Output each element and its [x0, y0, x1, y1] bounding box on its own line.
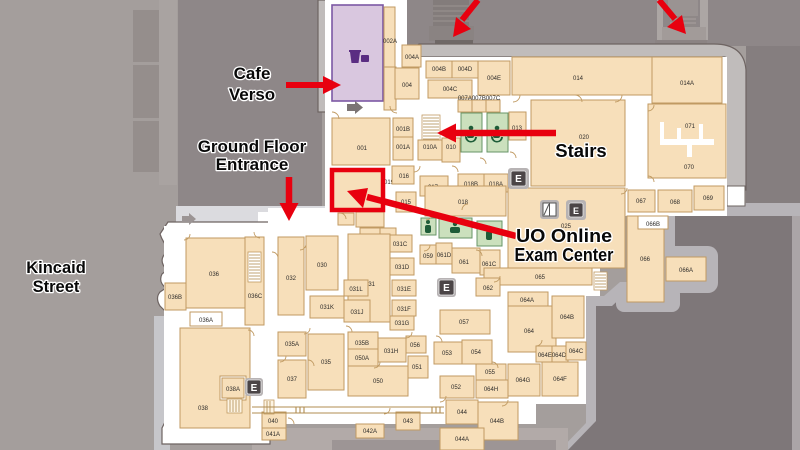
svg-text:053: 053: [442, 351, 453, 357]
svg-text:064: 064: [524, 329, 535, 335]
svg-text:004A: 004A: [405, 55, 419, 61]
svg-text:035: 035: [321, 360, 332, 366]
svg-text:064C: 064C: [569, 349, 584, 355]
svg-text:001B: 001B: [396, 127, 410, 133]
svg-text:066A: 066A: [679, 268, 693, 274]
svg-text:001A: 001A: [396, 145, 410, 151]
svg-text:Exam Center: Exam Center: [515, 245, 614, 265]
svg-text:Entrance: Entrance: [216, 155, 289, 174]
svg-text:064B: 064B: [560, 315, 574, 321]
svg-text:016: 016: [399, 174, 410, 180]
svg-text:065: 065: [535, 275, 546, 281]
svg-text:044A: 044A: [455, 437, 469, 443]
svg-text:004D: 004D: [458, 67, 473, 73]
svg-text:064A: 064A: [520, 298, 534, 304]
svg-text:E: E: [573, 206, 579, 216]
svg-text:062: 062: [483, 286, 494, 292]
svg-text:004C: 004C: [443, 87, 458, 93]
svg-text:061D: 061D: [437, 253, 452, 259]
svg-text:004: 004: [402, 83, 413, 89]
svg-text:E: E: [515, 174, 522, 185]
svg-text:064E064D: 064E064D: [538, 353, 567, 359]
svg-text:042A: 042A: [363, 429, 377, 435]
svg-text:050A: 050A: [355, 356, 369, 362]
svg-text:040: 040: [268, 419, 279, 425]
svg-text:031G: 031G: [395, 321, 410, 327]
svg-text:Stairs: Stairs: [555, 140, 606, 161]
svg-text:043: 043: [403, 419, 414, 425]
svg-text:066B: 066B: [646, 222, 660, 228]
svg-text:037: 037: [287, 377, 298, 383]
svg-text:055: 055: [485, 370, 496, 376]
svg-text:031D: 031D: [395, 265, 410, 271]
svg-text:061: 061: [459, 260, 470, 266]
svg-text:064H: 064H: [484, 387, 498, 393]
svg-text:051: 051: [412, 365, 423, 371]
svg-text:E: E: [251, 383, 258, 394]
svg-text:044B: 044B: [490, 419, 504, 425]
svg-text:035A: 035A: [285, 342, 299, 348]
svg-text:036C: 036C: [248, 294, 263, 300]
svg-text:010A: 010A: [423, 145, 437, 151]
svg-text:004E: 004E: [487, 76, 501, 82]
svg-text:050: 050: [373, 379, 384, 385]
svg-text:059: 059: [423, 254, 434, 260]
svg-text:031L: 031L: [349, 287, 363, 293]
svg-text:054: 054: [471, 350, 482, 356]
svg-text:036A: 036A: [199, 318, 213, 324]
svg-text:038: 038: [198, 406, 209, 412]
svg-text:010: 010: [446, 145, 457, 151]
svg-text:068: 068: [670, 200, 681, 206]
svg-text:056: 056: [410, 343, 421, 349]
svg-text:031H: 031H: [384, 349, 398, 355]
svg-text:070: 070: [684, 165, 695, 171]
svg-text:064F: 064F: [553, 377, 567, 383]
svg-text:031J: 031J: [350, 310, 363, 316]
svg-text:064G: 064G: [516, 378, 531, 384]
svg-text:030: 030: [317, 263, 328, 269]
svg-text:061C: 061C: [482, 262, 497, 268]
svg-text:057: 057: [459, 320, 470, 326]
svg-text:067: 067: [636, 199, 647, 205]
svg-text:031E: 031E: [397, 287, 411, 293]
svg-text:001: 001: [357, 146, 368, 152]
svg-text:007A007B007C: 007A007B007C: [458, 96, 501, 102]
svg-text:069: 069: [703, 196, 714, 202]
svg-text:Kincaid: Kincaid: [26, 259, 86, 277]
svg-text:031C: 031C: [393, 242, 408, 248]
svg-text:036: 036: [209, 272, 220, 278]
svg-text:014A: 014A: [680, 81, 694, 87]
svg-text:066: 066: [640, 257, 651, 263]
svg-text:044: 044: [457, 410, 468, 416]
svg-text:038A: 038A: [226, 387, 240, 393]
svg-text:Street: Street: [33, 278, 80, 296]
svg-text:Cafe: Cafe: [234, 64, 271, 83]
svg-text:036B: 036B: [168, 295, 182, 301]
svg-text:Ground Floor: Ground Floor: [198, 137, 307, 156]
svg-text:035B: 035B: [355, 341, 369, 347]
svg-text:UO Online: UO Online: [516, 226, 612, 246]
svg-text:032: 032: [286, 276, 297, 282]
svg-text:031F: 031F: [397, 307, 411, 313]
svg-text:014: 014: [573, 76, 584, 82]
svg-text:002A: 002A: [383, 39, 397, 45]
svg-text:Verso: Verso: [229, 85, 275, 104]
svg-text:031K: 031K: [320, 305, 334, 311]
svg-text:052: 052: [451, 385, 462, 391]
svg-text:041A: 041A: [266, 432, 280, 438]
svg-text:071: 071: [685, 124, 696, 130]
svg-text:004B: 004B: [432, 67, 446, 73]
svg-text:E: E: [443, 283, 450, 294]
svg-text:018: 018: [458, 200, 469, 206]
